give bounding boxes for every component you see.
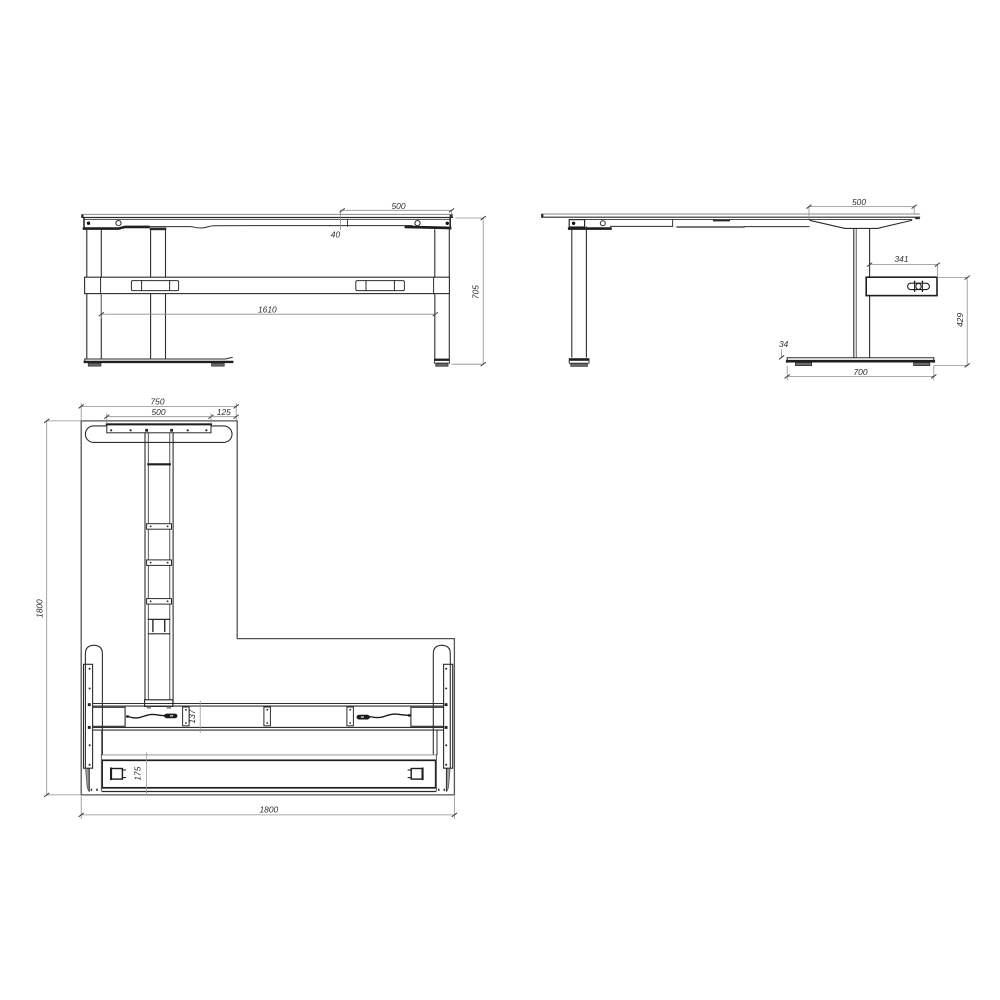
svg-text:429: 429 bbox=[955, 313, 965, 327]
svg-text:500: 500 bbox=[392, 201, 406, 211]
svg-text:700: 700 bbox=[854, 367, 868, 377]
svg-text:1800: 1800 bbox=[35, 599, 45, 618]
svg-text:40: 40 bbox=[331, 229, 341, 239]
svg-text:500: 500 bbox=[152, 407, 166, 417]
svg-text:750: 750 bbox=[151, 397, 165, 407]
svg-text:341: 341 bbox=[895, 254, 909, 264]
svg-text:125: 125 bbox=[217, 407, 231, 417]
svg-text:34: 34 bbox=[779, 339, 789, 349]
svg-text:705: 705 bbox=[471, 285, 481, 299]
svg-text:175: 175 bbox=[133, 766, 143, 780]
svg-text:1800: 1800 bbox=[260, 804, 279, 814]
svg-text:137: 137 bbox=[187, 709, 197, 723]
svg-text:500: 500 bbox=[852, 197, 866, 207]
svg-text:1610: 1610 bbox=[258, 304, 277, 314]
